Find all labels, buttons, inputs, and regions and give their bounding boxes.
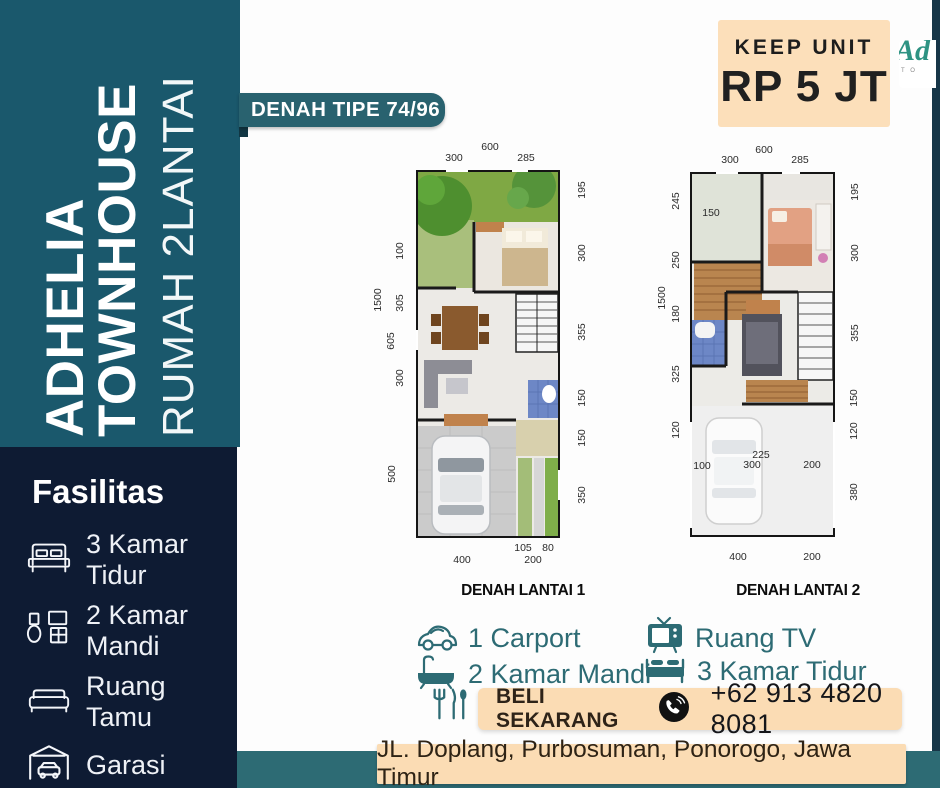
flyer-page: Ad T O KEEP UNIT RP 5 JT ADHELIA TOWNHOU… [0, 0, 940, 788]
floor-plan-2 [690, 172, 835, 537]
dimension-label: 195 [576, 181, 588, 199]
dimension-label: 150 [702, 207, 720, 219]
promo-badge: KEEP UNIT RP 5 JT [718, 20, 890, 127]
project-title-line1: ADHELIA [40, 0, 92, 437]
dimension-label: 250 [670, 251, 682, 269]
facilities-list: 3 Kamar Tidur 2 Kamar Mandi Ruang Tamu G… [26, 529, 237, 788]
dimension-label: 200 [524, 554, 542, 566]
address-bar: JL. Doplang, Purbosuman, Ponorogo, Jawa … [377, 744, 906, 784]
list-item: Garasi [26, 742, 237, 788]
dimension-label: 300 [445, 152, 463, 164]
dimension-label: 300 [721, 154, 739, 166]
project-title-line2: TOWNHOUSE [92, 0, 144, 437]
dimension-label: 380 [848, 483, 860, 501]
dimension-label: 300 [743, 459, 761, 471]
list-item: Ruang Tamu [26, 671, 237, 733]
dimension-label: 100 [394, 242, 406, 260]
dimension-label: 285 [791, 154, 809, 166]
dimension-label: 105 [514, 542, 532, 554]
dimension-label: 200 [803, 551, 821, 563]
floor-plan-2-label: DENAH LANTAI 2 [736, 582, 860, 600]
dimension-label: 1500 [372, 288, 384, 311]
dimension-label: 150 [576, 389, 588, 407]
logo-script-text: Ad [899, 40, 930, 68]
dimension-label: 120 [670, 421, 682, 439]
facility-label: 3 Kamar Tidur [86, 529, 237, 591]
dimension-label: 400 [453, 554, 471, 566]
floor-plan-1-label: DENAH LANTAI 1 [461, 582, 585, 600]
feature-label: 1 Carport [468, 623, 581, 654]
dimension-label: 300 [576, 244, 588, 262]
facility-label: Garasi [86, 750, 166, 781]
dimension-label: 195 [849, 183, 861, 201]
dimension-label: 245 [670, 192, 682, 210]
dimension-label: 600 [481, 141, 499, 153]
dimension-label: 150 [576, 429, 588, 447]
dimension-label: 300 [849, 244, 861, 262]
phone-icon [659, 692, 689, 727]
buy-now-button[interactable]: BELI SEKARANG [496, 685, 637, 733]
address-text: JL. Doplang, Purbosuman, Ponorogo, Jawa … [377, 736, 906, 788]
plan-type-tag: DENAH TIPE 74/96 [239, 93, 445, 127]
cta-bar[interactable]: BELI SEKARANG +62 913 4820 8081 [478, 688, 902, 730]
project-subtitle: RUMAH 2LANTAI [154, 0, 204, 437]
list-item: 2 Kamar Mandi [26, 600, 237, 662]
garage-icon [26, 742, 72, 788]
dimension-label: 600 [755, 144, 773, 156]
bed-icon [643, 651, 687, 692]
promo-line2: RP 5 JT [720, 62, 888, 112]
bathroom-icon [26, 608, 72, 655]
dimension-label: 355 [849, 324, 861, 342]
dimension-label: 605 [385, 332, 397, 350]
sidebar-vertical-text: ADHELIA TOWNHOUSE RUMAH 2LANTAI [0, 0, 240, 447]
sofa-icon [26, 683, 72, 722]
bed-icon [26, 539, 72, 582]
project-title: ADHELIA TOWNHOUSE [40, 0, 144, 437]
dimension-label: 300 [394, 369, 406, 387]
dimension-label: 100 [693, 460, 711, 472]
dimension-label: 150 [848, 389, 860, 407]
dimension-label: 350 [576, 486, 588, 504]
facilities-panel: Fasilitas 3 Kamar Tidur 2 Kamar Mandi Ru… [0, 447, 237, 788]
facilities-heading: Fasilitas [32, 473, 164, 511]
dimension-label: 355 [576, 323, 588, 341]
phone-number[interactable]: +62 913 4820 8081 [711, 678, 902, 740]
cutlery-icon [428, 687, 468, 728]
dimension-label: 305 [394, 294, 406, 312]
right-border-strip [932, 0, 940, 788]
dimension-label: 325 [670, 365, 682, 383]
dimension-label: 285 [517, 152, 535, 164]
dimension-label: 1500 [656, 286, 668, 309]
logo-card: Ad T O [899, 40, 936, 88]
facility-label: 2 Kamar Mandi [86, 600, 237, 662]
dimension-label: 400 [729, 551, 747, 563]
logo-caption: T O [901, 68, 917, 74]
floor-plan-1 [416, 170, 560, 538]
sidebar: ADHELIA TOWNHOUSE RUMAH 2LANTAI [0, 0, 240, 447]
dimension-label: 180 [670, 305, 682, 323]
dimension-label: 120 [848, 422, 860, 440]
list-item: 3 Kamar Tidur [26, 529, 237, 591]
facility-label: Ruang Tamu [86, 671, 237, 733]
dimension-label: 80 [542, 542, 554, 554]
promo-line1: KEEP UNIT [735, 36, 874, 60]
dimension-label: 200 [803, 459, 821, 471]
feature-label: Ruang TV [695, 623, 816, 654]
dimension-label: 500 [386, 465, 398, 483]
